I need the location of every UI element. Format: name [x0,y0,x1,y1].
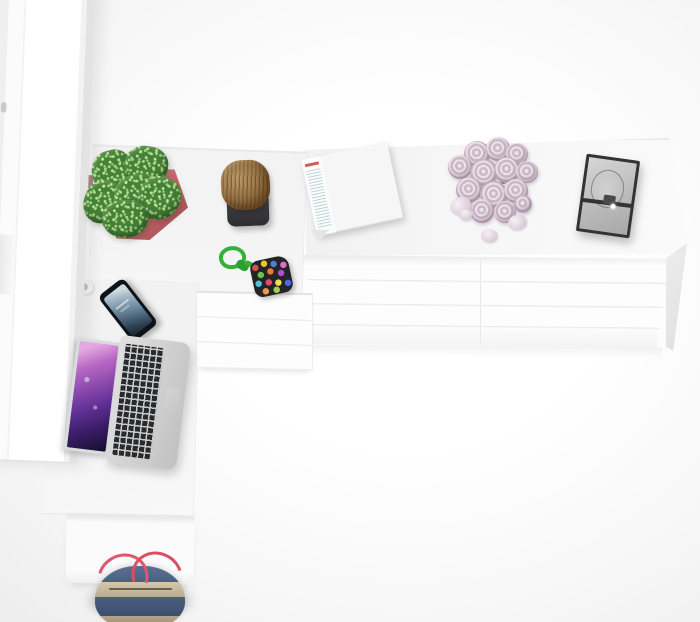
dresser-side-panel [666,243,690,351]
laptop-keyboard [112,344,164,460]
drawer-gap-line [197,316,312,322]
drawer-column-divider [480,257,482,346]
desk-drawer-pedestal [196,291,313,370]
stool-wood-seat [220,159,272,211]
drawer-gap-line [307,303,672,309]
dresser-floor-shadow [306,345,662,358]
drawer-gap-line [197,341,312,347]
magazine-heading [305,161,319,167]
scene-canvas [0,0,700,622]
rose [448,155,472,179]
rose [470,199,494,223]
rose-bouquet [440,133,542,231]
dresser-drawer-front [303,250,675,348]
drawer-gap-line [307,325,672,331]
tote-bag [95,556,185,622]
laptop [60,327,191,472]
frame-stand [603,194,616,205]
laptop-trackpad [162,387,182,423]
frame-glint [610,204,616,210]
plant-leaves [84,146,182,242]
leaf-cluster [100,198,149,240]
hinge [1,102,6,111]
wardrobe-edge-step [0,234,14,294]
drawer-gap-line [307,279,672,285]
rose [514,195,532,213]
bag-canvas-rim [95,616,185,622]
picture-frame [576,154,640,239]
